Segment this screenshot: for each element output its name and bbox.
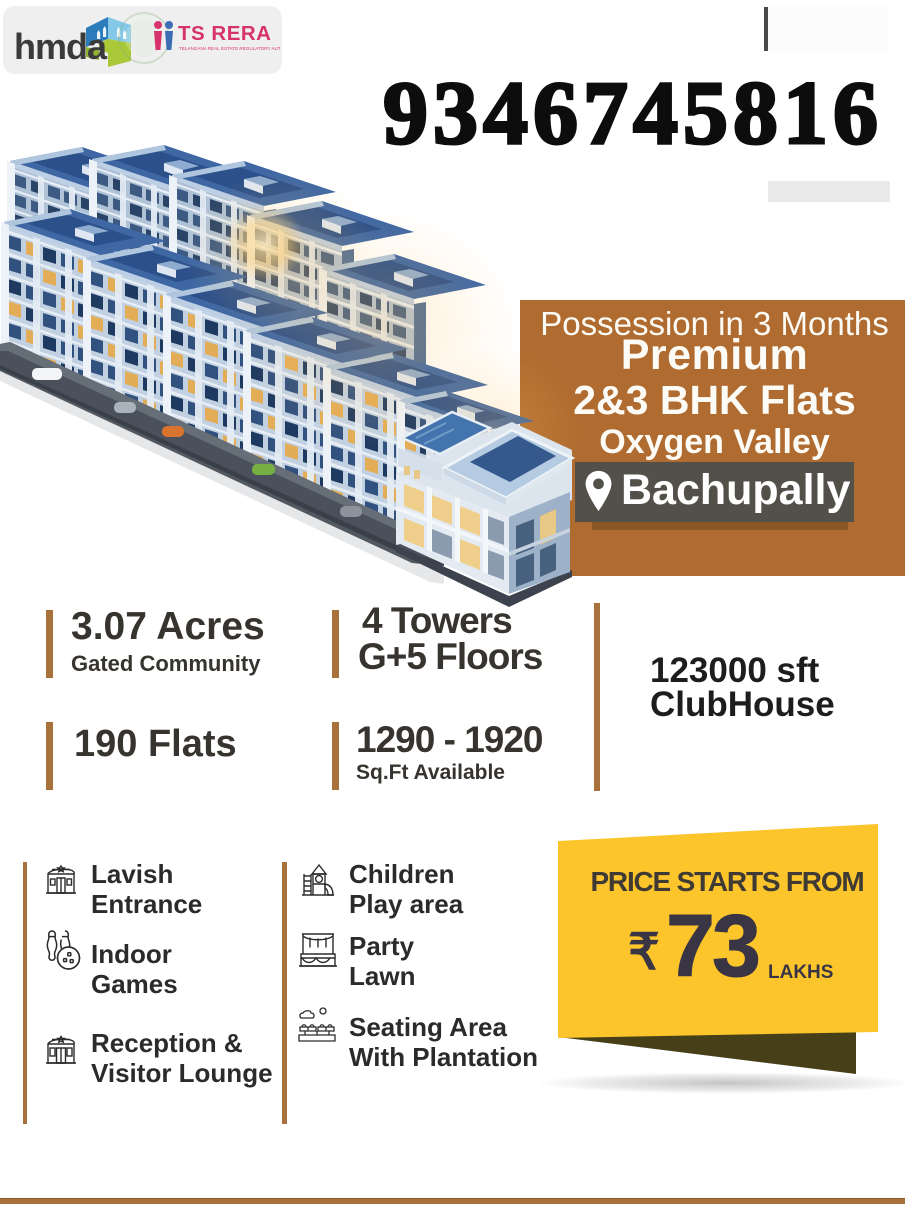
svg-text:hmda: hmda — [14, 26, 108, 67]
svg-text:TELANGANA REAL ESTATE REGULATO: TELANGANA REAL ESTATE REGULATORY AUTHORI… — [179, 46, 280, 51]
svg-text:TS RERA: TS RERA — [178, 22, 271, 45]
